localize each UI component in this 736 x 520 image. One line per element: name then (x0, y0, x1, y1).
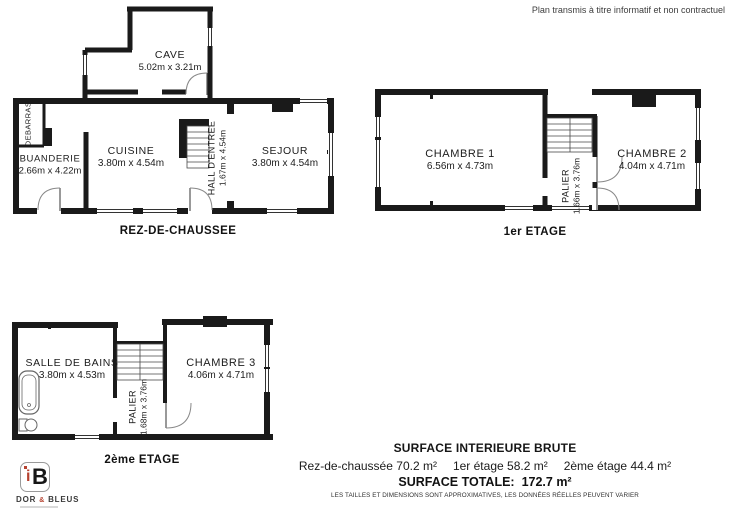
area-value: 58.2 m² (507, 459, 548, 473)
agency-logo: i B DOR & BLEUS (16, 462, 86, 508)
room-dims: 1.68m x 3.76m (139, 379, 149, 435)
area-item-second: 2ème étage 44.4 m² (556, 459, 679, 473)
logo-name-prefix: DOR (16, 495, 36, 504)
room-name: PALIER (128, 379, 138, 435)
area-value: 70.2 m² (396, 459, 437, 473)
disclaimer-note: Plan transmis à titre informatif et non … (532, 5, 725, 15)
area-label: 2ème étage (564, 459, 627, 473)
summary-note: LES TAILLES ET DIMENSIONS SONT APPROXIMA… (260, 492, 710, 499)
floor-label-ground: REZ-DE-CHAUSSEE (120, 225, 237, 237)
summary-total: SURFACE TOTALE: 172.7 m² (260, 475, 710, 489)
room-name: CHAMBRE 1 (425, 148, 495, 160)
room-label-chambre2: CHAMBRE 2 4.04m x 4.71m (617, 148, 687, 172)
room-label-palier-2: PALIER 1.68m x 3.76m (128, 379, 149, 435)
logo-letter-i: i (26, 468, 30, 486)
room-name: SALLE DE BAINS (25, 357, 118, 369)
ff-stairs-icon (547, 118, 592, 152)
floor-label-second: 2ème ETAGE (104, 454, 179, 466)
room-dims: 1.67m x 4.54m (218, 121, 228, 196)
room-name: DEBARRAS (24, 102, 33, 146)
area-label: Rez-de-chaussée (299, 459, 393, 473)
room-label-cave: CAVE 5.02m x 3.21m (139, 49, 202, 73)
summary-title: SURFACE INTERIEURE BRUTE (260, 441, 710, 455)
room-name: BUANDERIE (19, 154, 82, 165)
toilet-icon (19, 419, 37, 431)
logo-ampersand: & (39, 497, 45, 504)
room-label-salle-de-bains: SALLE DE BAINS 3.80m x 4.53m (25, 357, 118, 381)
room-dims: 3.80m x 4.53m (25, 370, 118, 381)
room-dims: 1.66m x 3.76m (572, 158, 582, 214)
room-label-debarras: DEBARRAS (24, 102, 33, 146)
surface-summary: SURFACE INTERIEURE BRUTE Rez-de-chaussée… (260, 441, 710, 499)
floor-plan-page: Plan transmis à titre informatif et non … (0, 0, 736, 520)
room-name: HALL D'ENTREE (207, 121, 217, 196)
ff-chimney (632, 95, 656, 107)
gf-chimney (272, 101, 293, 112)
area-value: 44.4 m² (630, 459, 671, 473)
room-name: CUISINE (98, 145, 164, 157)
area-item-first: 1er étage 58.2 m² (445, 459, 556, 473)
room-name: PALIER (561, 158, 571, 214)
logo-mark-icon: i B (20, 462, 50, 492)
area-label: 1er étage (453, 459, 504, 473)
logo-name: DOR & BLEUS (16, 495, 86, 504)
room-label-sejour: SEJOUR 3.80m x 4.54m (252, 145, 318, 169)
sf-stairs-icon (117, 344, 163, 380)
room-dims: 4.06m x 4.71m (186, 370, 256, 381)
room-dims: 5.02m x 3.21m (139, 62, 202, 73)
total-value: 172.7 m² (522, 475, 572, 489)
room-dims: 2.66m x 4.22m (19, 166, 82, 177)
logo-name-suffix: BLEUS (48, 495, 79, 504)
total-label: SURFACE TOTALE: (398, 475, 514, 489)
floor-label-first: 1er ETAGE (504, 226, 567, 238)
logo-tagline (20, 506, 58, 508)
second-floor-doors (166, 403, 191, 428)
room-dims: 6.56m x 4.73m (425, 161, 495, 172)
room-name: CHAMBRE 2 (617, 148, 687, 160)
sf-chimney (203, 316, 227, 327)
room-name: CHAMBRE 3 (186, 357, 256, 369)
area-item-ground: Rez-de-chaussée 70.2 m² (291, 459, 445, 473)
room-name: SEJOUR (252, 145, 318, 157)
room-label-palier-1: PALIER 1.66m x 3.76m (561, 158, 582, 214)
logo-letter-b: B (32, 464, 48, 490)
room-dims: 3.80m x 4.54m (98, 158, 164, 169)
room-dims: 3.80m x 4.54m (252, 158, 318, 169)
room-label-hall: HALL D'ENTREE 1.67m x 4.54m (207, 121, 228, 196)
room-label-cuisine: CUISINE 3.80m x 4.54m (98, 145, 164, 169)
room-label-chambre1: CHAMBRE 1 6.56m x 4.73m (425, 148, 495, 172)
room-label-buanderie: BUANDERIE 2.66m x 4.22m (19, 154, 82, 177)
room-dims: 4.04m x 4.71m (617, 161, 687, 172)
room-label-chambre3: CHAMBRE 3 4.06m x 4.71m (186, 357, 256, 381)
room-name: CAVE (139, 49, 202, 61)
summary-areas: Rez-de-chaussée 70.2 m²1er étage 58.2 m²… (260, 459, 710, 473)
